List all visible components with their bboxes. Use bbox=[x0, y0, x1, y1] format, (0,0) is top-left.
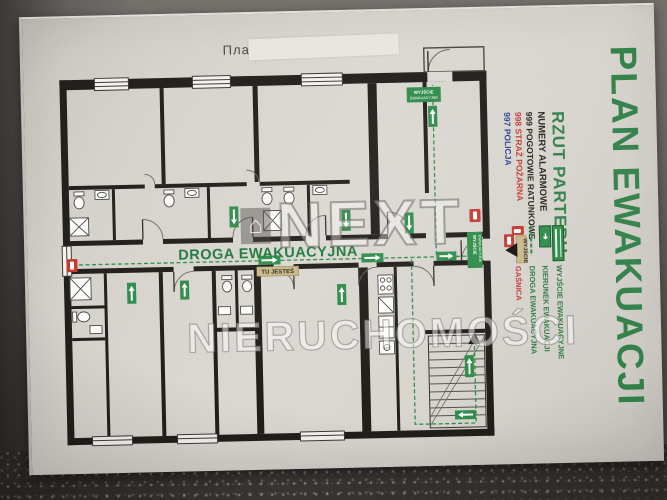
exit-sign-text: WYJŚCIE bbox=[472, 235, 477, 255]
direction-arrow-icon bbox=[428, 106, 437, 127]
legend-label: KIERUNEK EWAKUACJI bbox=[541, 265, 552, 351]
legend-label: DROGA EWAKUACYJNA bbox=[527, 266, 538, 355]
corridor-label: DROGA EWAKUACYJNA bbox=[178, 244, 358, 264]
direction-arrow-icon bbox=[361, 253, 383, 262]
direction-arrow-icon bbox=[455, 410, 476, 419]
direction-arrow-icon bbox=[341, 210, 350, 231]
exit-sign-text: WYJŚCIE bbox=[414, 89, 434, 94]
shower-icon bbox=[70, 278, 91, 300]
shower-icon bbox=[263, 210, 281, 230]
legend-icon-slot: ➜ bbox=[538, 225, 551, 265]
legend-block: WYJŚCIE EWAKUACYJNE ➜ KIERUNEK EWAKUACJI… bbox=[511, 225, 568, 376]
you-are-here-marker: TU JESTEŚ bbox=[257, 266, 299, 276]
room-arrow-signs-down bbox=[229, 202, 414, 237]
direction-arrow-icon bbox=[436, 251, 456, 260]
legend-icon-slot bbox=[512, 226, 525, 266]
you-are-here-label: TU JESTEŚ bbox=[261, 268, 294, 276]
direction-arrow-icon bbox=[337, 284, 346, 305]
alarm-label: STRAŻ POŻARNA bbox=[514, 128, 526, 201]
right-margin: PLAN EWAKUACJI RZUT PARTERU NUMERY ALARM… bbox=[494, 41, 653, 444]
extinguisher-icon bbox=[66, 259, 77, 272]
alarm-number: 999 bbox=[524, 112, 534, 126]
alarm-number: 998 bbox=[513, 112, 523, 126]
photo-scene: Пла bbox=[0, 0, 667, 500]
extinguisher-icon bbox=[469, 209, 480, 222]
exit-sign-text: EWAKUACYJNE bbox=[477, 235, 482, 263]
legend-icon-slot bbox=[530, 226, 533, 266]
alarm-label: POLICJA bbox=[503, 129, 514, 166]
route-line-icon bbox=[530, 226, 533, 256]
page-title: PLAN EWAKUACJI bbox=[602, 45, 652, 407]
direction-arrow-icon bbox=[180, 280, 189, 299]
legend-label: GAŚNICA bbox=[514, 266, 524, 301]
stairs-direction-triangle bbox=[468, 332, 480, 344]
top-exit-sign: WYJŚCIE EWAKUACYJNE bbox=[407, 87, 441, 103]
direction-arrow-icon bbox=[404, 212, 413, 233]
extinguisher-icon bbox=[512, 226, 524, 235]
direction-arrow-icon bbox=[229, 206, 238, 227]
direction-arrow-icon bbox=[127, 283, 136, 304]
kitchen-stove-icon bbox=[378, 275, 393, 294]
floor-plan: WYJŚCIE EWAKUACYJNE WYJŚCIE EWAKUACYJNE … bbox=[54, 38, 533, 459]
evacuation-plan-poster: Пла bbox=[19, 3, 664, 475]
direction-arrow-icon: ➜ bbox=[538, 225, 550, 247]
legend-label: WYJŚCIE EWAKUACYJNE bbox=[554, 265, 565, 359]
shower-icon bbox=[69, 218, 88, 236]
exit-sign-text: EWAKUACYJNE bbox=[410, 96, 439, 101]
exit-sign-icon bbox=[552, 225, 565, 261]
right-exit-sign: WYJŚCIE EWAKUACYJNE bbox=[467, 232, 483, 268]
direction-arrow-icon bbox=[465, 355, 474, 377]
legend-icon-slot bbox=[552, 225, 565, 265]
alarm-number: 997 bbox=[502, 112, 512, 126]
